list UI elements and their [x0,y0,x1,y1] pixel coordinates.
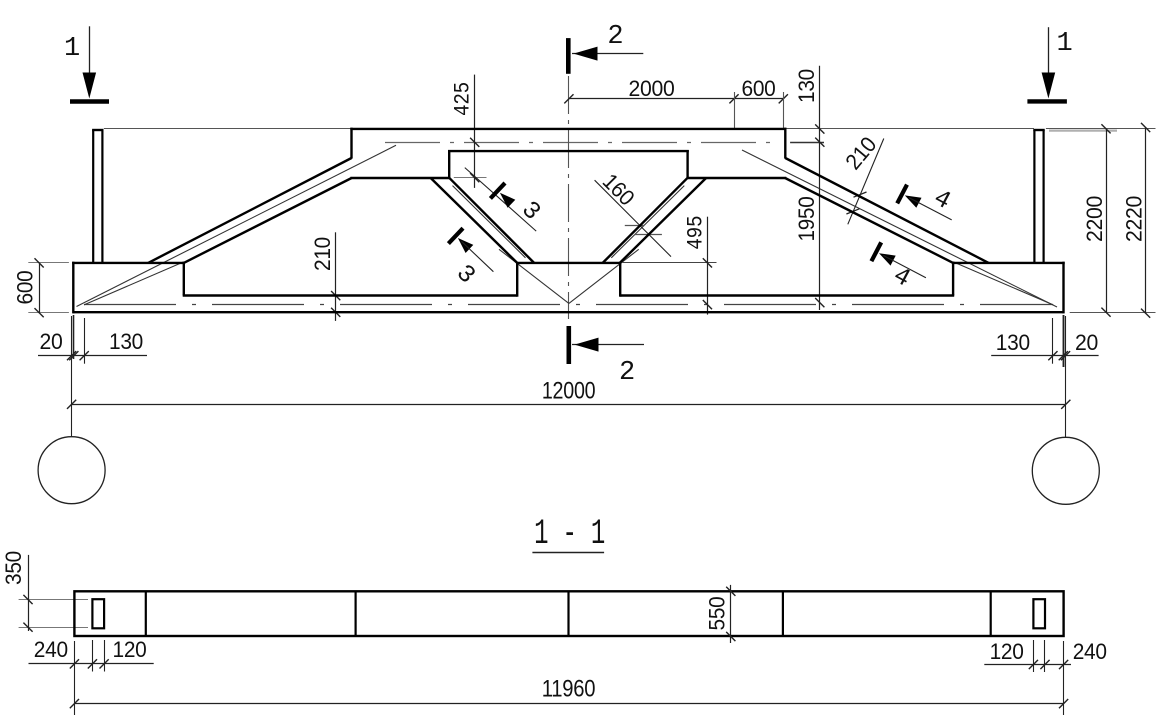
svg-text:2000: 2000 [629,76,675,101]
svg-text:2: 2 [619,358,635,388]
svg-text:1 - 1: 1 - 1 [534,514,605,554]
svg-text:600: 600 [742,76,776,101]
svg-text:600: 600 [13,270,38,304]
svg-text:20: 20 [1075,330,1098,355]
svg-text:130: 130 [996,330,1030,355]
svg-text:120: 120 [990,639,1024,664]
svg-text:2: 2 [607,22,623,52]
svg-text:210: 210 [310,237,335,271]
svg-text:130: 130 [794,69,819,103]
svg-text:425: 425 [451,82,476,116]
svg-text:350: 350 [1,551,26,585]
svg-text:130: 130 [109,329,143,354]
svg-text:495: 495 [684,216,709,250]
svg-text:12000: 12000 [542,378,596,405]
svg-text:240: 240 [34,637,68,662]
svg-text:1: 1 [1057,29,1073,59]
svg-text:2200: 2200 [1082,196,1107,242]
svg-text:120: 120 [113,637,147,662]
svg-text:20: 20 [40,329,63,354]
svg-text:240: 240 [1073,639,1107,664]
svg-text:550: 550 [705,596,730,630]
svg-text:2220: 2220 [1122,196,1147,242]
svg-text:11960: 11960 [542,675,596,702]
svg-text:1950: 1950 [794,196,819,241]
svg-text:1: 1 [64,34,80,64]
